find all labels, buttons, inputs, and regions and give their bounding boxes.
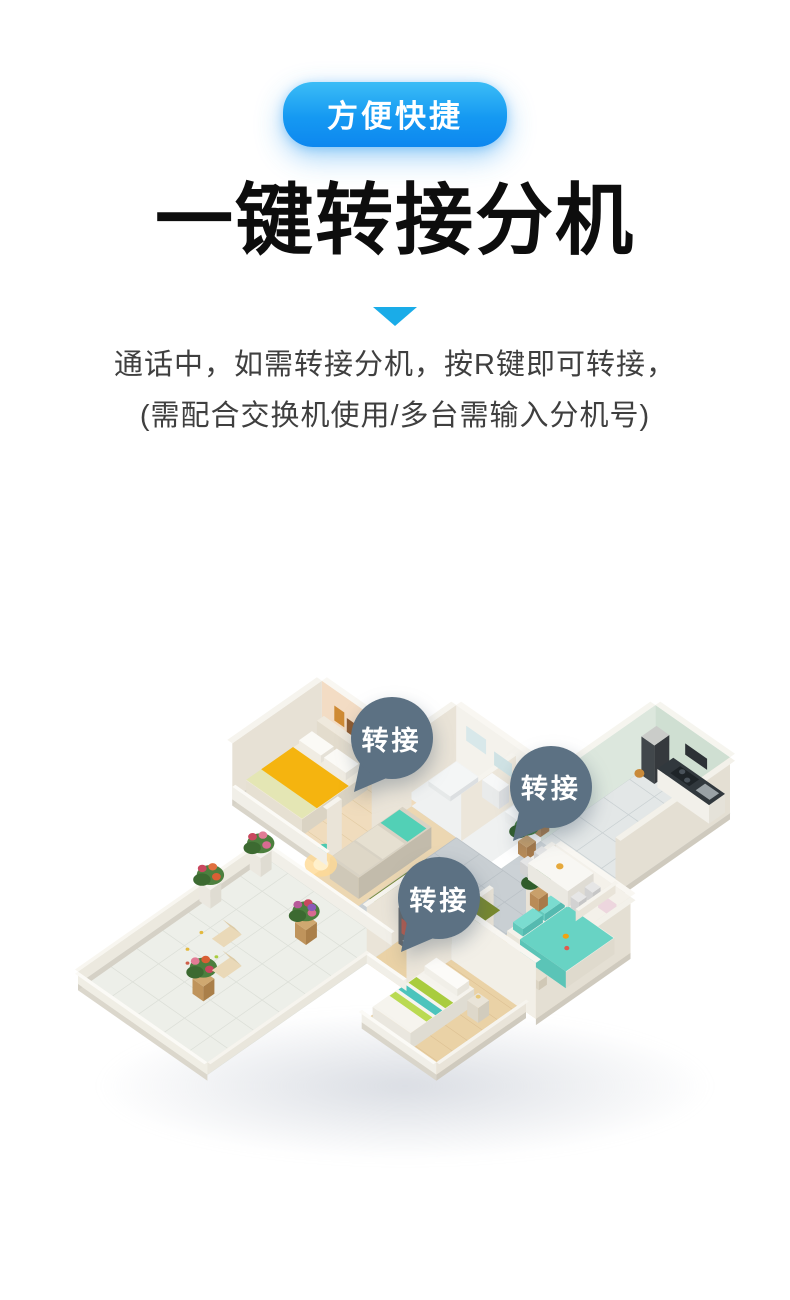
- transfer-badge-label: 转接: [398, 870, 480, 926]
- transfer-badge-bedroom1: 转接: [342, 694, 438, 798]
- transfer-badge-bedroom3: 转接: [389, 854, 485, 958]
- transfer-badge-dining: 转接: [501, 743, 597, 847]
- transfer-badge-label: 转接: [351, 710, 433, 766]
- apartment-isometric-svg: [0, 0, 790, 1300]
- transfer-badge-label: 转接: [510, 759, 592, 815]
- floorplan-illustration: 转接 转接 转接: [0, 0, 790, 1300]
